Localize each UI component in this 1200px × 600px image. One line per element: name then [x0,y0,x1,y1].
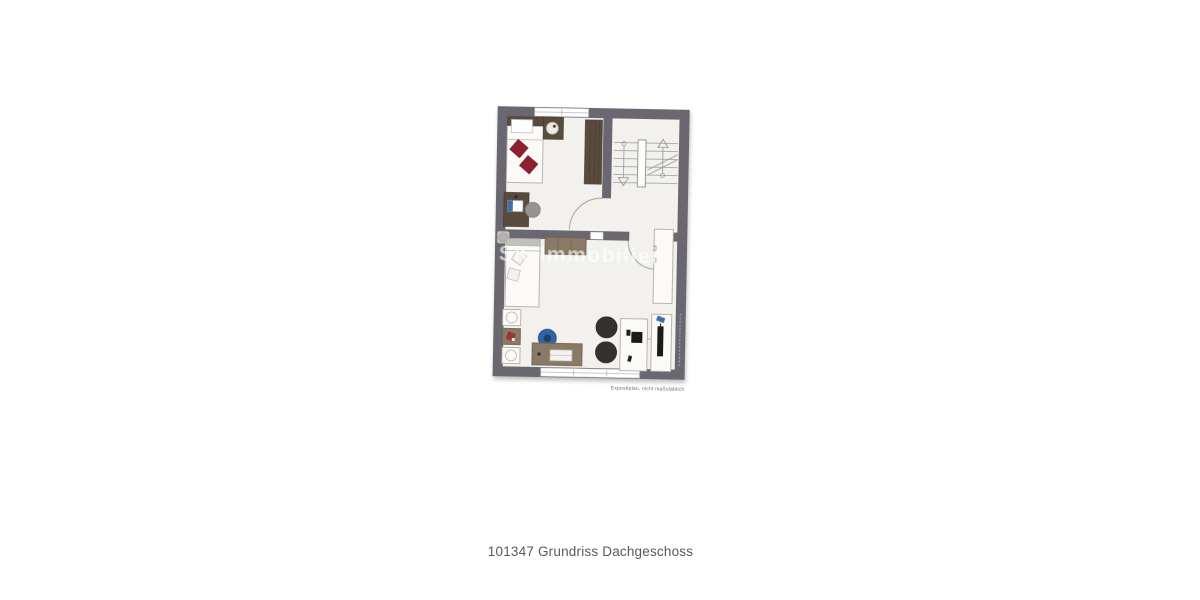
wardrobe-dark [584,120,602,184]
floor-plan: SK-Immobilien Exposéplan, nicht maßstäbl… [492,106,690,395]
side-table-2 [502,347,520,363]
stair-divider [637,140,646,187]
page: SK-Immobilien Exposéplan, nicht maßstäbl… [0,0,1200,600]
page-title: 101347 Grundriss Dachgeschoss [0,544,1181,559]
bed-single-red [506,116,543,183]
floor-plan-drawing [493,106,691,381]
side-table-1 [503,309,521,325]
tv-cabinet [651,314,672,371]
corner-nightstand [543,117,563,139]
disclaimer-text: Exposéplan, nicht maßstäblich [491,383,684,393]
desk-chair [525,202,540,217]
window-top [535,108,589,117]
sideboard [545,237,586,255]
tv [657,326,664,356]
door-leaf-hall [590,232,603,240]
lamp [546,122,558,134]
wardrobe-white [652,229,673,303]
interior-wall-vertical [602,117,613,198]
side-table-plant [502,328,520,344]
